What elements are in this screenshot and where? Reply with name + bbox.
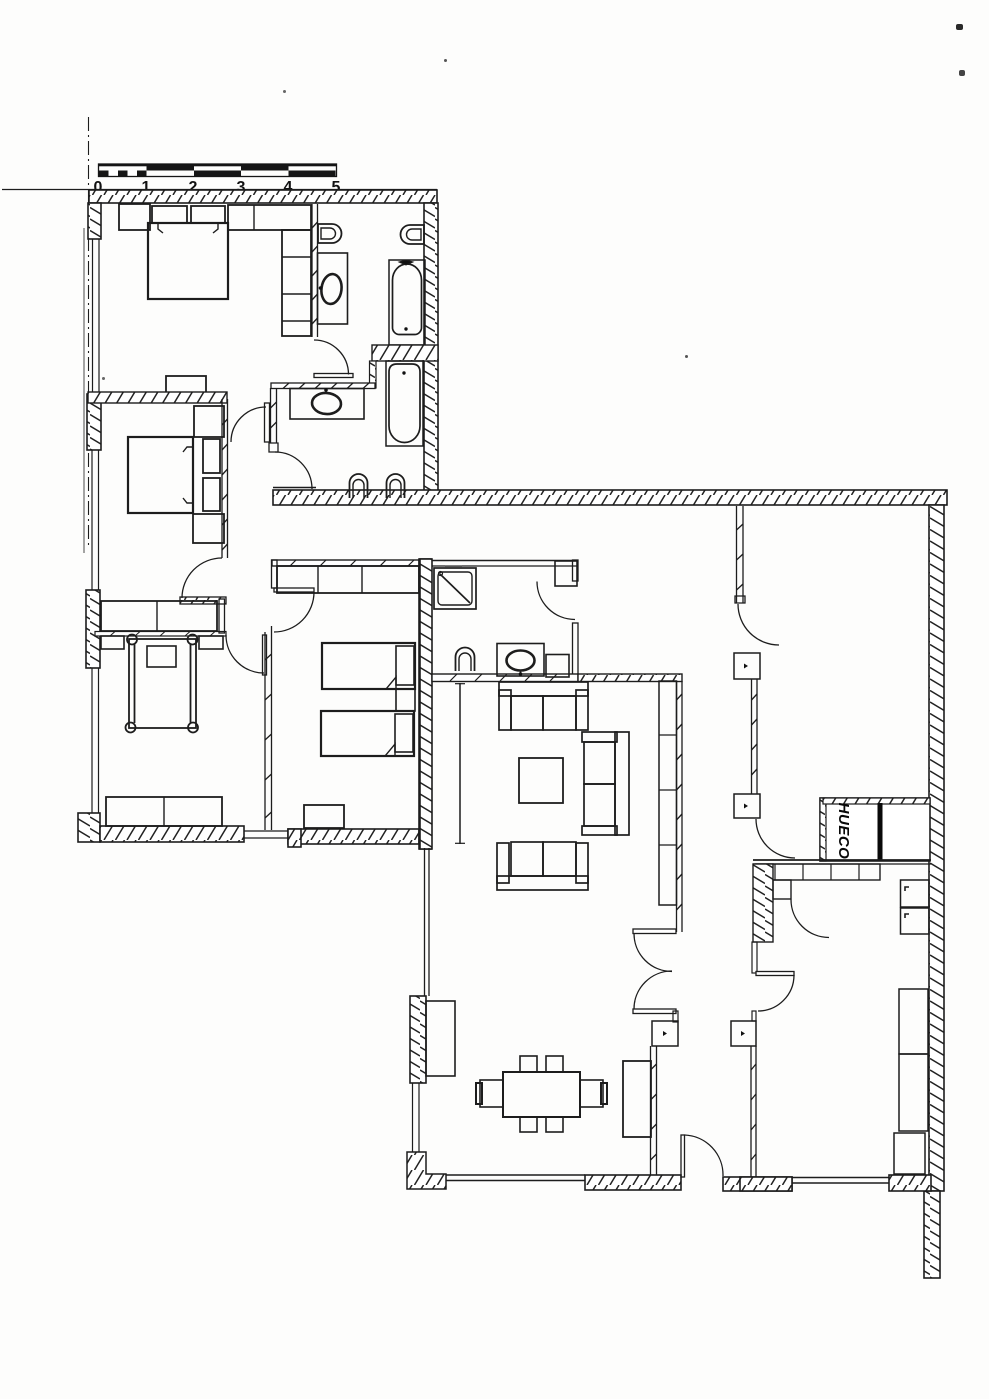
svg-text:HUECO: HUECO [835, 803, 852, 860]
